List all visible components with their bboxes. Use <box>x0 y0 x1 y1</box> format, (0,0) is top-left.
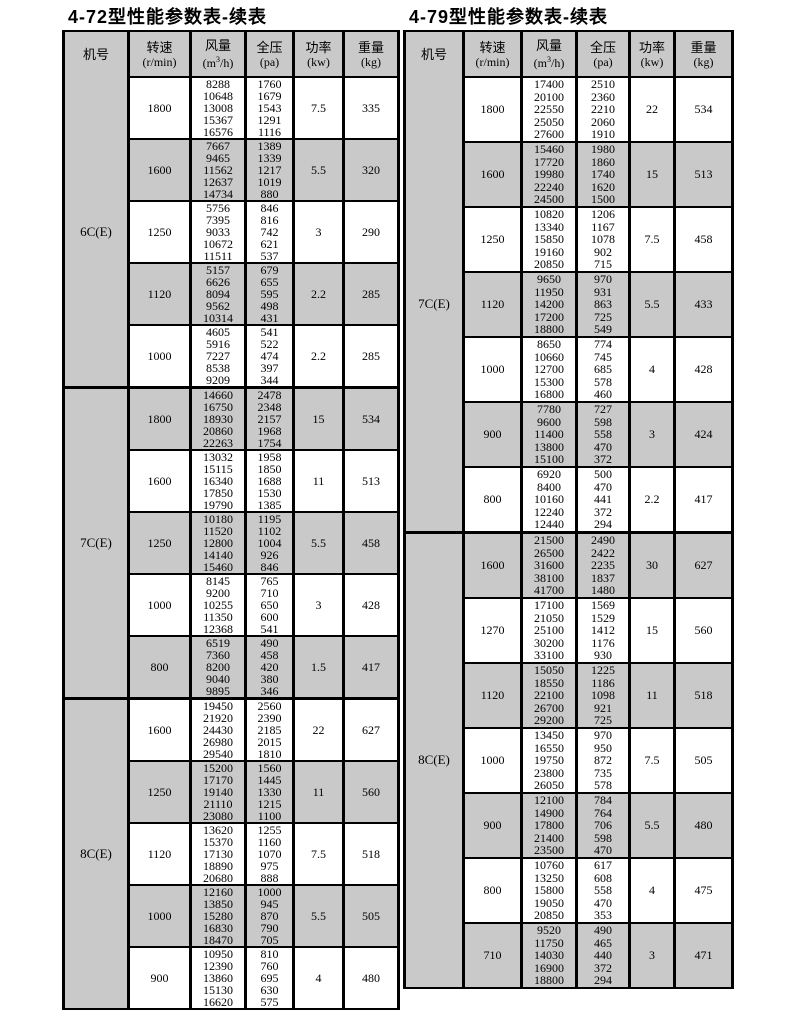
pressure-values: 774745685578460 <box>578 338 628 401</box>
power-cell: 5.5 <box>630 272 675 337</box>
flow-cell: 65197360820090409895 <box>191 636 246 699</box>
power-cell: 5.5 <box>630 793 675 858</box>
col-header-power: 功率(kw) <box>294 31 344 77</box>
flow-cell: 1303215115163401785019790 <box>191 450 246 512</box>
flow-cell: 1362015370171301889020680 <box>191 823 246 885</box>
pressure-cell: 541522474397344 <box>246 325 294 388</box>
pressure-value: 431 <box>247 312 292 324</box>
speed-cell: 1270 <box>464 598 522 663</box>
weight-cell: 424 <box>675 402 733 467</box>
flow-value: 6920 <box>523 468 575 481</box>
pressure-values: 24902422223518371480 <box>578 534 628 597</box>
weight-cell: 627 <box>344 699 399 762</box>
pressure-values: 679655595498431 <box>247 264 292 324</box>
pressure-values: 727598558470372 <box>578 403 628 466</box>
speed-cell: 900 <box>464 793 522 858</box>
col-header-model: 机号 <box>64 31 129 77</box>
flow-value: 17400 <box>523 78 575 91</box>
speed-cell: 1600 <box>129 450 191 512</box>
pressure-value: 490 <box>578 924 628 937</box>
flow-cell: 1945021920244302698029540 <box>191 699 246 762</box>
pressure-values: 1000945870790705 <box>247 886 292 946</box>
pressure-value: 1980 <box>578 143 628 156</box>
weight-cell: 518 <box>344 823 399 885</box>
pressure-values: 120611671078902715 <box>578 208 628 271</box>
flow-cell: 865010660127001530016800 <box>522 337 577 402</box>
pressure-value: 537 <box>247 250 292 262</box>
flow-value: 41700 <box>523 584 575 597</box>
flow-value: 8650 <box>523 338 575 351</box>
pressure-cell: 617608558470353 <box>577 858 630 923</box>
flow-value: 19750 <box>523 754 575 767</box>
power-cell: 15 <box>630 142 675 207</box>
pressure-value: 549 <box>578 323 628 336</box>
flow-cell: 1345016550197502380026050 <box>522 728 577 793</box>
pressure-value: 440 <box>578 949 628 962</box>
flow-values: 1740020100225502505027600 <box>523 78 575 141</box>
pressure-values: 125511601070975888 <box>247 824 292 884</box>
flow-value: 18800 <box>523 323 575 336</box>
flow-value: 10314 <box>192 312 244 324</box>
col-header-unit: (m3/h) <box>192 53 244 70</box>
flow-cell: 965011950142001720018800 <box>522 272 577 337</box>
flow-values: 1505018550221002670029200 <box>523 664 575 727</box>
flow-value: 16576 <box>192 126 244 138</box>
flow-value: 10820 <box>523 208 575 221</box>
pressure-values: 19581850168815301385 <box>247 451 292 511</box>
model-cell: 8C(E) <box>64 699 129 1010</box>
pressure-values: 15601445133012151100 <box>247 762 292 822</box>
flow-cell: 76679465115621263714734 <box>191 139 246 201</box>
pressure-value: 541 <box>247 623 292 635</box>
power-cell: 22 <box>294 699 344 762</box>
speed-cell: 1800 <box>129 388 191 451</box>
pressure-value: 1098 <box>578 689 628 702</box>
pressure-value: 470 <box>578 844 628 857</box>
pressure-cell: 19581850168815301385 <box>246 450 294 512</box>
pressure-values: 765710650600541 <box>247 575 292 635</box>
flow-value: 23080 <box>192 810 244 822</box>
power-cell: 7.5 <box>294 823 344 885</box>
col-header-label: 功率 <box>631 40 673 55</box>
weight-cell: 417 <box>675 467 733 532</box>
pressure-cell: 490458420380346 <box>246 636 294 699</box>
flow-values: 1945021920244302698029540 <box>192 700 244 760</box>
flow-values: 1520017170191402111023080 <box>192 762 244 822</box>
power-cell: 7.5 <box>630 207 675 272</box>
weight-cell: 428 <box>675 337 733 402</box>
col-header-weight: 重量(kg) <box>675 31 733 77</box>
weight-cell: 513 <box>675 142 733 207</box>
weight-cell: 471 <box>675 923 733 988</box>
flow-value: 15460 <box>523 143 575 156</box>
power-cell: 5.5 <box>294 139 344 201</box>
flow-value: 15050 <box>523 664 575 677</box>
col-header-label: 全压 <box>578 40 628 55</box>
pressure-value: 1480 <box>578 584 628 597</box>
col-header-unit: (pa) <box>247 55 292 69</box>
pressure-value: 575 <box>247 996 292 1008</box>
flow-value: 12100 <box>523 794 575 807</box>
col-header-label: 重量 <box>676 40 731 55</box>
col-header-pressure: 全压(pa) <box>246 31 294 77</box>
power-cell: 2.2 <box>630 467 675 532</box>
pressure-cell: 970931863725549 <box>577 272 630 337</box>
pressure-value: 727 <box>578 403 628 416</box>
flow-value: 9209 <box>192 374 244 386</box>
flow-value: 17800 <box>523 819 575 832</box>
flow-values: 1082013340158501916020850 <box>523 208 575 271</box>
flow-cell: 1076013250158001905020850 <box>522 858 577 923</box>
pressure-cell: 25602390218520151810 <box>246 699 294 762</box>
speed-cell: 1000 <box>464 337 522 402</box>
pressure-values: 490465440372294 <box>578 924 628 987</box>
flow-cell: 1210014900178002140023500 <box>522 793 577 858</box>
col-header-label: 风量 <box>192 38 244 53</box>
pressure-value: 1078 <box>578 233 628 246</box>
power-cell: 30 <box>630 532 675 597</box>
power-cell: 11 <box>294 761 344 823</box>
pressure-cell: 15601445133012151100 <box>246 761 294 823</box>
col-header-label: 功率 <box>295 40 342 55</box>
col-header-label: 机号 <box>406 47 462 62</box>
pressure-values: 19801860174016201500 <box>578 143 628 206</box>
model-cell: 7C(E) <box>64 388 129 699</box>
power-cell: 2.2 <box>294 325 344 388</box>
power-cell: 7.5 <box>294 77 344 139</box>
flow-value: 10160 <box>523 493 575 506</box>
pressure-value: 715 <box>578 258 628 271</box>
pressure-cell: 25102360221020601910 <box>577 77 630 142</box>
flow-values: 828810648130081536716576 <box>192 78 244 138</box>
pressure-value: 2490 <box>578 534 628 547</box>
flow-cell: 2150026500316003810041700 <box>522 532 577 597</box>
pressure-value: 1385 <box>247 499 292 511</box>
pressure-value: 617 <box>578 859 628 872</box>
speed-cell: 1600 <box>464 142 522 207</box>
power-cell: 22 <box>630 77 675 142</box>
flow-values: 1095012390138601513016620 <box>192 948 244 1008</box>
weight-cell: 428 <box>344 574 399 636</box>
col-header-label: 重量 <box>345 40 397 55</box>
flow-values: 77809600114001380015100 <box>523 403 575 466</box>
power-cell: 3 <box>630 402 675 467</box>
weight-cell: 290 <box>344 201 399 263</box>
col-header-label: 转速 <box>130 40 189 55</box>
flow-value: 15800 <box>523 884 575 897</box>
flow-value: 20850 <box>523 909 575 922</box>
flow-value: 14200 <box>523 298 575 311</box>
weight-cell: 285 <box>344 263 399 325</box>
pressure-value: 880 <box>247 188 292 200</box>
col-header-unit: (r/min) <box>130 55 189 69</box>
flow-value: 20680 <box>192 872 244 884</box>
flow-cell: 1466016750189302086022263 <box>191 388 246 451</box>
weight-cell: 560 <box>344 761 399 823</box>
col-header-unit: (m3/h) <box>523 53 575 70</box>
flow-values: 1362015370171301889020680 <box>192 824 244 884</box>
pressure-cell: 970950872735578 <box>577 728 630 793</box>
pressure-value: 970 <box>578 729 628 742</box>
flow-cell: 1216013850152801683018470 <box>191 885 246 947</box>
speed-cell: 800 <box>464 858 522 923</box>
flow-values: 1345016550197502380026050 <box>523 729 575 792</box>
flow-value: 15100 <box>523 453 575 466</box>
flow-value: 19790 <box>192 499 244 511</box>
speed-cell: 1600 <box>129 139 191 201</box>
pressure-value: 1754 <box>247 437 292 449</box>
col-header-label: 风量 <box>523 38 575 53</box>
power-cell: 5.5 <box>294 885 344 947</box>
weight-cell: 513 <box>344 450 399 512</box>
pressure-value: 863 <box>578 298 628 311</box>
weight-cell: 534 <box>344 388 399 451</box>
pressure-cell: 846816742621537 <box>246 201 294 263</box>
flow-value: 10760 <box>523 859 575 872</box>
flow-cell: 1520017170191402111023080 <box>191 761 246 823</box>
flow-cell: 828810648130081536716576 <box>191 77 246 139</box>
pressure-values: 1569152914121176930 <box>578 599 628 662</box>
flow-value: 9520 <box>523 924 575 937</box>
pressure-cell: 1389133912171019880 <box>246 139 294 201</box>
pressure-value: 685 <box>578 363 628 376</box>
table-4-72: 机号转速(r/min)风量(m3/h)全压(pa)功率(kw)重量(kg) 6C… <box>62 30 400 1010</box>
flow-value: 11400 <box>523 428 575 441</box>
flow-value: 29540 <box>192 748 244 760</box>
col-header-unit: (kg) <box>345 55 397 69</box>
power-cell: 4 <box>630 337 675 402</box>
model-cell: 6C(E) <box>64 77 129 388</box>
speed-cell: 1000 <box>464 728 522 793</box>
weight-cell: 433 <box>675 272 733 337</box>
flow-values: 1466016750189302086022263 <box>192 389 244 449</box>
speed-cell: 710 <box>464 923 522 988</box>
table-4-79: 机号转速(r/min)风量(m3/h)全压(pa)功率(kw)重量(kg) 7C… <box>403 30 734 989</box>
pressure-value: 1910 <box>578 128 628 141</box>
table-4-79-head: 机号转速(r/min)风量(m3/h)全压(pa)功率(kw)重量(kg) <box>405 31 733 77</box>
pressure-value: 1412 <box>578 624 628 637</box>
speed-cell: 900 <box>129 947 191 1009</box>
pressure-cell: 774745685578460 <box>577 337 630 402</box>
power-cell: 3 <box>630 923 675 988</box>
flow-values: 76679465115621263714734 <box>192 140 244 200</box>
table-4-79-title: 4-79型性能参数表-续表 <box>409 6 731 28</box>
flow-cell: 1095012390138601513016620 <box>191 947 246 1009</box>
pressure-cell: 765710650600541 <box>246 574 294 636</box>
flow-cell: 1740020100225502505027600 <box>522 77 577 142</box>
pressure-cell: 1569152914121176930 <box>577 598 630 663</box>
pressure-values: 24782348215719681754 <box>247 389 292 449</box>
pressure-cell: 125511601070975888 <box>246 823 294 885</box>
pressure-value: 1225 <box>578 664 628 677</box>
weight-cell: 505 <box>344 885 399 947</box>
flow-value: 33100 <box>523 649 575 662</box>
flow-values: 2150026500316003810041700 <box>523 534 575 597</box>
weight-cell: 475 <box>675 858 733 923</box>
flow-cell: 81459200102551135012368 <box>191 574 246 636</box>
pressure-value: 784 <box>578 794 628 807</box>
pressure-values: 25102360221020601910 <box>578 78 628 141</box>
pressure-cell: 120611671078902715 <box>577 207 630 272</box>
flow-values: 865010660127001530016800 <box>523 338 575 401</box>
col-header-unit: (kw) <box>295 55 342 69</box>
flow-values: 965011950142001720018800 <box>523 273 575 336</box>
weight-cell: 518 <box>675 663 733 728</box>
speed-cell: 1000 <box>129 574 191 636</box>
power-cell: 7.5 <box>630 728 675 793</box>
pressure-cell: 24782348215719681754 <box>246 388 294 451</box>
speed-cell: 1800 <box>464 77 522 142</box>
pressure-cell: 490465440372294 <box>577 923 630 988</box>
speed-cell: 1250 <box>129 512 191 574</box>
header-row: 机号转速(r/min)风量(m3/h)全压(pa)功率(kw)重量(kg) <box>405 31 733 77</box>
pressure-cell: 19801860174016201500 <box>577 142 630 207</box>
flow-cell: 515766268094956210314 <box>191 263 246 325</box>
col-header-weight: 重量(kg) <box>344 31 399 77</box>
power-cell: 2.2 <box>294 263 344 325</box>
flow-value: 16620 <box>192 996 244 1008</box>
flow-value: 29200 <box>523 714 575 727</box>
table-4-72-title: 4-72型性能参数表-续表 <box>68 6 397 28</box>
table-4-79-container: 4-79型性能参数表-续表 机号转速(r/min)风量(m3/h)全压(pa)功… <box>403 6 731 989</box>
pressure-value: 2510 <box>578 78 628 91</box>
pressure-value: 346 <box>247 685 292 697</box>
speed-cell: 1800 <box>129 77 191 139</box>
pressure-values: 617608558470353 <box>578 859 628 922</box>
flow-cell: 952011750140301690018800 <box>522 923 577 988</box>
speed-cell: 1600 <box>129 699 191 762</box>
pressure-value: 1569 <box>578 599 628 612</box>
col-header-flow: 风量(m3/h) <box>522 31 577 77</box>
power-cell: 5.5 <box>294 512 344 574</box>
flow-value: 22100 <box>523 689 575 702</box>
weight-cell: 560 <box>675 598 733 663</box>
speed-cell: 1250 <box>464 207 522 272</box>
flow-value: 23500 <box>523 844 575 857</box>
pressure-value: 930 <box>578 649 628 662</box>
pressure-value: 725 <box>578 714 628 727</box>
table-4-79-body: 7C(E)18001740020100225502505027600251023… <box>405 77 733 988</box>
flow-value: 25100 <box>523 624 575 637</box>
pressure-value: 441 <box>578 493 628 506</box>
pressure-cell: 679655595498431 <box>246 263 294 325</box>
flow-values: 952011750140301690018800 <box>523 924 575 987</box>
pressure-values: 541522474397344 <box>247 326 292 386</box>
flow-values: 1018011520128001414015460 <box>192 513 244 573</box>
flow-value: 12700 <box>523 363 575 376</box>
speed-cell: 900 <box>464 402 522 467</box>
speed-cell: 1250 <box>129 761 191 823</box>
flow-values: 46055916722785389209 <box>192 326 244 386</box>
pressure-cell: 500470441372294 <box>577 467 630 532</box>
flow-value: 19980 <box>523 168 575 181</box>
pressure-cell: 727598558470372 <box>577 402 630 467</box>
col-header-label: 机号 <box>65 47 127 62</box>
spec-row: 8C(E)16001945021920244302698029540256023… <box>64 699 399 762</box>
pressure-values: 490458420380346 <box>247 637 292 697</box>
pressure-cell: 17601679154312911116 <box>246 77 294 139</box>
model-cell: 7C(E) <box>405 77 464 532</box>
pressure-value: 353 <box>578 909 628 922</box>
pressure-values: 1389133912171019880 <box>247 140 292 200</box>
flow-value: 15460 <box>192 561 244 573</box>
power-cell: 4 <box>630 858 675 923</box>
speed-cell: 1120 <box>129 823 191 885</box>
table-4-72-head: 机号转速(r/min)风量(m3/h)全压(pa)功率(kw)重量(kg) <box>64 31 399 77</box>
pressure-values: 970950872735578 <box>578 729 628 792</box>
weight-cell: 335 <box>344 77 399 139</box>
flow-value: 13450 <box>523 729 575 742</box>
pressure-values: 122511861098921725 <box>578 664 628 727</box>
power-cell: 3 <box>294 574 344 636</box>
col-header-unit: (kg) <box>676 55 731 69</box>
col-header-pressure: 全压(pa) <box>577 31 630 77</box>
flow-value: 20850 <box>523 258 575 271</box>
col-header-unit: (kw) <box>631 55 673 69</box>
pressure-value: 1116 <box>247 126 292 138</box>
pressure-values: 119511021004926846 <box>247 513 292 573</box>
weight-cell: 458 <box>675 207 733 272</box>
table-4-72-body: 6C(E)18008288106481300815367165761760167… <box>64 77 399 1009</box>
flow-cell: 1505018550221002670029200 <box>522 663 577 728</box>
speed-cell: 1600 <box>464 532 522 597</box>
speed-cell: 1000 <box>129 885 191 947</box>
flow-cell: 46055916722785389209 <box>191 325 246 388</box>
pressure-values: 784764706598470 <box>578 794 628 857</box>
pressure-value: 888 <box>247 872 292 884</box>
pressure-values: 500470441372294 <box>578 468 628 531</box>
speed-cell: 800 <box>464 467 522 532</box>
weight-cell: 480 <box>675 793 733 858</box>
flow-values: 1216013850152801683018470 <box>192 886 244 946</box>
pressure-value: 1100 <box>247 810 292 822</box>
weight-cell: 627 <box>675 532 733 597</box>
header-row: 机号转速(r/min)风量(m3/h)全压(pa)功率(kw)重量(kg) <box>64 31 399 77</box>
flow-value: 18470 <box>192 934 244 946</box>
flow-value: 11511 <box>192 250 244 262</box>
flow-cell: 1546017720199802224024500 <box>522 142 577 207</box>
pressure-cell: 119511021004926846 <box>246 512 294 574</box>
pressure-values: 810760695630575 <box>247 948 292 1008</box>
flow-value: 27600 <box>523 128 575 141</box>
flow-cell: 1082013340158501916020850 <box>522 207 577 272</box>
speed-cell: 1120 <box>129 263 191 325</box>
flow-value: 7780 <box>523 403 575 416</box>
pressure-value: 578 <box>578 779 628 792</box>
flow-values: 69208400101601224012440 <box>523 468 575 531</box>
flow-value: 31600 <box>523 559 575 572</box>
flow-value: 15850 <box>523 233 575 246</box>
pressure-value: 1206 <box>578 208 628 221</box>
flow-values: 65197360820090409895 <box>192 637 244 697</box>
pressure-value: 558 <box>578 884 628 897</box>
weight-cell: 505 <box>675 728 733 793</box>
flow-value: 17100 <box>523 599 575 612</box>
spec-row: 6C(E)18008288106481300815367165761760167… <box>64 77 399 139</box>
spec-row: 7C(E)18001466016750189302086022263247823… <box>64 388 399 451</box>
power-cell: 11 <box>630 663 675 728</box>
pressure-value: 872 <box>578 754 628 767</box>
col-header-speed: 转速(r/min) <box>129 31 191 77</box>
speed-cell: 1000 <box>129 325 191 388</box>
flow-value: 24500 <box>523 193 575 206</box>
col-header-model: 机号 <box>405 31 464 77</box>
flow-values: 515766268094956210314 <box>192 264 244 324</box>
flow-values: 81459200102551135012368 <box>192 575 244 635</box>
flow-cell: 77809600114001380015100 <box>522 402 577 467</box>
pressure-value: 558 <box>578 428 628 441</box>
col-header-label: 转速 <box>465 40 520 55</box>
